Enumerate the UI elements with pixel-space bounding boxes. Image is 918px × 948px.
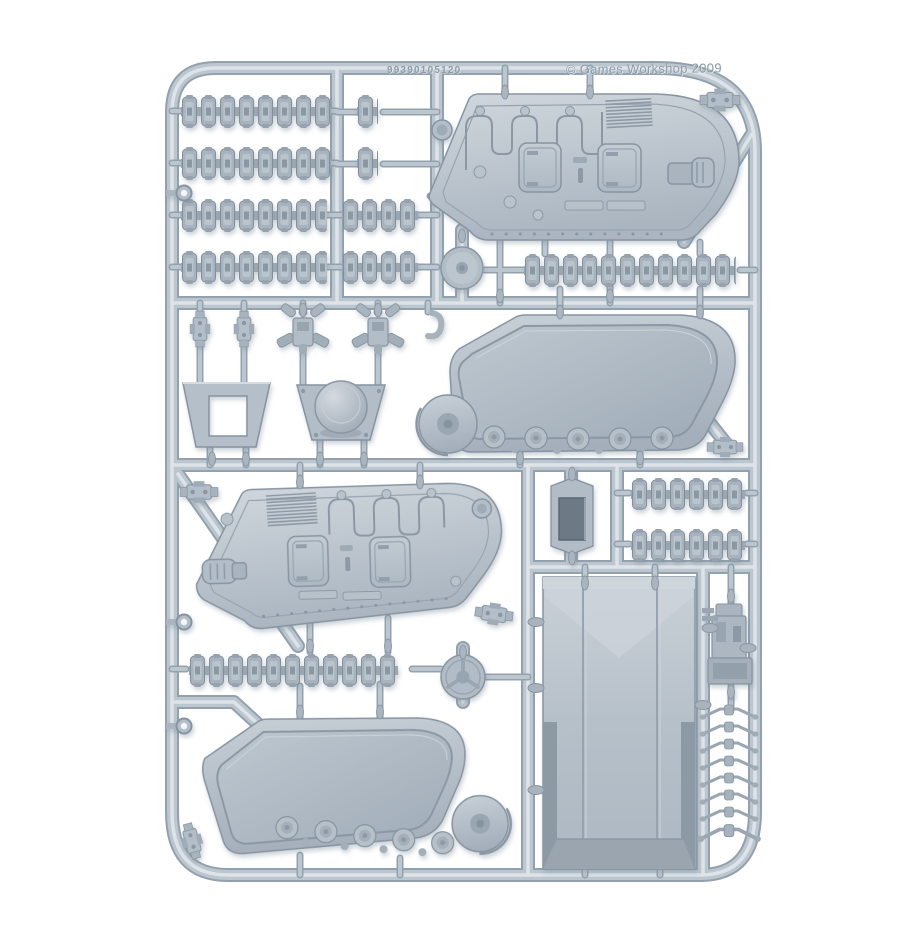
track-link-strip	[181, 147, 331, 180]
track-link-strip	[631, 478, 745, 510]
copyright-text: © Games Workshop 2009 © Games Workshop 2…	[566, 60, 723, 77]
clamp-bracket	[190, 311, 210, 347]
clamp-bracket	[707, 437, 743, 457]
wheel-hub	[651, 427, 673, 449]
track-link-strip	[524, 254, 736, 287]
track-link-strip	[189, 654, 398, 687]
gate-pin	[569, 467, 576, 481]
sprue-frame: 99390105120 99390105120 © Games Workshop…	[0, 0, 918, 948]
idler-housing	[417, 395, 477, 455]
wheel-hub	[431, 831, 454, 854]
track-guard-panel-lower	[201, 712, 514, 860]
sprue-photo: 99390105120 99390105120 © Games Workshop…	[0, 0, 918, 948]
idler-housing	[451, 795, 511, 855]
svg-text:© Games Workshop 2009: © Games Workshop 2009	[566, 60, 722, 77]
track-link-strip	[181, 95, 331, 128]
hatch-door	[287, 536, 328, 587]
single-track-link	[357, 95, 378, 128]
wheel-hub	[276, 816, 299, 839]
svg-text:99390105120: 99390105120	[387, 65, 461, 76]
periscope-box	[551, 467, 593, 565]
wheel-hub	[392, 828, 415, 851]
wheel-hub	[354, 824, 377, 847]
exhaust-stub	[668, 158, 714, 187]
hatch-door	[519, 143, 561, 192]
fuel-cap	[432, 120, 452, 140]
wheel-hub	[315, 820, 338, 843]
track-link-strip	[631, 529, 745, 561]
track-link-strip	[342, 251, 418, 284]
track-link-strip	[181, 251, 327, 284]
wheel-disc	[441, 655, 485, 699]
wheel-hub	[567, 428, 589, 450]
fuel-cap	[472, 499, 491, 518]
wheel-disc	[441, 247, 483, 289]
wheel-hub	[525, 427, 547, 449]
track-link-strip	[181, 199, 327, 232]
hook-part	[428, 313, 441, 336]
wheel-hub	[609, 428, 631, 450]
roof-panel	[543, 577, 695, 869]
hull-side-panel-upper	[429, 94, 739, 240]
track-guard-panel-upper	[417, 315, 736, 455]
hatch-frame	[183, 383, 270, 447]
hatch-door	[370, 536, 411, 587]
clamp-bracket	[474, 601, 514, 628]
clamp-bracket	[234, 311, 254, 347]
dome-hatch	[297, 381, 385, 440]
wheel-hub	[483, 426, 505, 448]
single-track-link	[357, 147, 378, 180]
track-link-strip	[342, 199, 418, 232]
hull-side-panel-middle	[194, 482, 504, 630]
molded-code-text: 99390105120 99390105120	[387, 65, 462, 77]
gate-pin	[569, 551, 576, 565]
hatch-door	[598, 144, 641, 192]
